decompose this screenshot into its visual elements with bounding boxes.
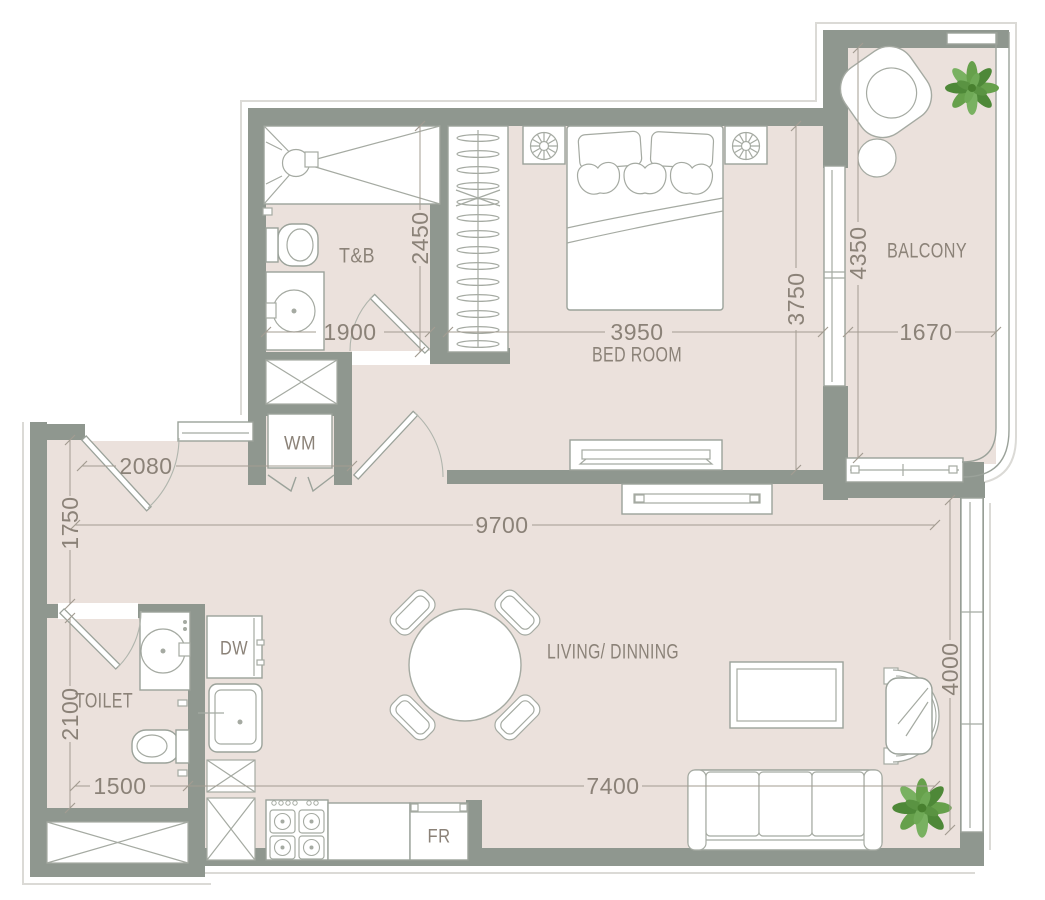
floor-plan: 2450 1900 3950 3750 4350 1670 2080 1750 … — [0, 0, 1045, 900]
plant-icon — [945, 61, 999, 115]
shaft-box — [207, 798, 255, 860]
plant-icon — [892, 778, 951, 837]
dimension-bedroom-depth: 3750 — [783, 272, 809, 325]
appliance-label-fr: FR — [428, 827, 451, 848]
shaft-box — [47, 822, 188, 863]
living-room-window — [961, 498, 983, 832]
appliance-label-wm: WM — [284, 434, 316, 455]
dimension-hall-depth: 1750 — [57, 496, 83, 549]
balcony-top-window — [947, 33, 997, 44]
dimension-living-width: 9700 — [475, 512, 528, 538]
bedroom-balcony-window — [824, 166, 845, 386]
dimension-toilet-width: 1500 — [93, 773, 146, 799]
dimension-tb-depth: 2450 — [407, 211, 433, 264]
dimension-tb-width: 1900 — [323, 319, 376, 345]
dimension-living-depth: 4000 — [937, 642, 963, 695]
room-label-tb: T&B — [339, 245, 375, 268]
appliance-label-dw: DW — [220, 639, 248, 660]
coffee-table — [730, 662, 843, 728]
toilet-vanity — [140, 612, 190, 690]
dimension-kitchen-run: 7400 — [586, 773, 639, 799]
room-label-toilet: TOILET — [75, 690, 133, 713]
cushion — [624, 163, 666, 193]
wardrobe — [448, 126, 508, 352]
table-lamp-icon — [531, 133, 558, 160]
tv-console-living — [622, 484, 772, 514]
bathroom-sink — [266, 272, 324, 350]
wall-tap-icon — [178, 700, 187, 706]
floor-plan-canvas: 2450 1900 3950 3750 4350 1670 2080 1750 … — [0, 0, 1045, 900]
shaft-box — [266, 360, 337, 404]
faucet-icon — [266, 303, 276, 318]
tv-console-bedroom — [570, 440, 722, 470]
dimension-entry-width: 2080 — [119, 453, 172, 479]
shower — [264, 126, 440, 204]
entry-sidelight — [178, 422, 253, 441]
room-label-balcony: BALCONY — [887, 240, 967, 263]
shaft-box — [207, 760, 255, 792]
room-label-bedroom: BED ROOM — [592, 344, 682, 367]
shower-head-icon — [305, 152, 318, 167]
wall-tap-icon — [263, 208, 272, 215]
stove — [266, 800, 328, 860]
sofa — [688, 770, 882, 850]
dimension-balcony-depth: 4350 — [845, 226, 871, 279]
toilet-wc — [132, 730, 189, 763]
toilet-wc — [266, 224, 318, 266]
table-lamp-icon — [733, 133, 760, 160]
faucet-icon — [179, 643, 190, 656]
kitchen-counter — [328, 803, 410, 860]
wall-tap-icon — [178, 770, 187, 776]
room-label-living: LIVING/ DINNING — [547, 641, 679, 664]
dining-table — [386, 586, 543, 743]
double-bed — [567, 126, 723, 310]
side-table — [858, 139, 896, 177]
dimension-bedroom-width: 3950 — [610, 319, 663, 345]
dimension-balcony-width: 1670 — [899, 319, 952, 345]
